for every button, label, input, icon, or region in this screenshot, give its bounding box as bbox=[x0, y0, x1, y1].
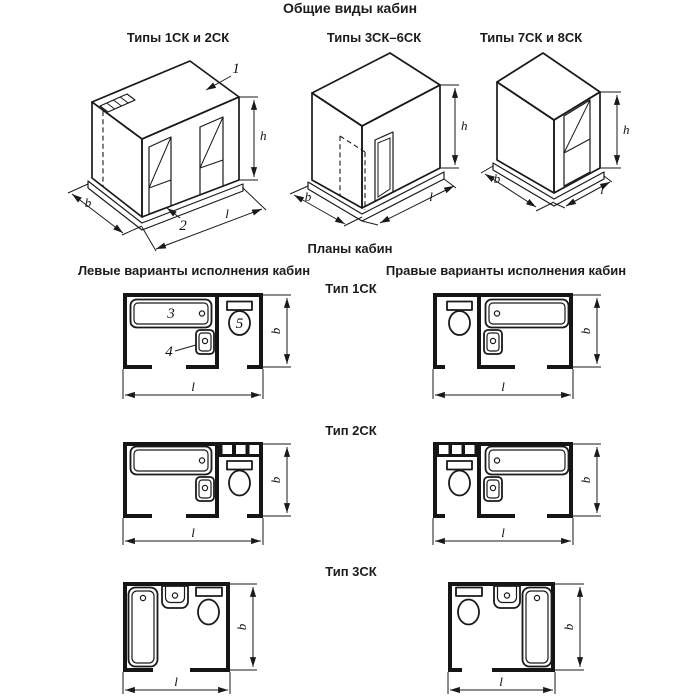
base-plinth bbox=[493, 163, 604, 206]
callout-label-1: 1 bbox=[232, 61, 240, 77]
dim-label-l: l bbox=[174, 674, 178, 689]
plan-3sk-right: b l bbox=[437, 577, 597, 700]
door-opening bbox=[149, 137, 171, 214]
dim-label-l: l bbox=[429, 189, 433, 204]
type-2sk-title: Тип 2СК bbox=[251, 423, 451, 438]
sheet-title: Общие виды кабин bbox=[0, 0, 700, 16]
dimension-l: l bbox=[448, 672, 555, 694]
dim-label-b: b bbox=[305, 189, 312, 204]
base-plinth bbox=[308, 172, 444, 221]
dimension-b: b bbox=[555, 584, 584, 670]
dimension-b: b bbox=[68, 184, 142, 235]
dimension-b: b bbox=[263, 295, 291, 367]
dim-label-b: b bbox=[268, 327, 283, 334]
dimension-l: l bbox=[362, 179, 456, 225]
cabin-box bbox=[88, 61, 243, 230]
dim-label-l: l bbox=[600, 182, 604, 197]
washbasin bbox=[494, 586, 520, 608]
bathtub bbox=[131, 447, 212, 475]
dimension-l: l bbox=[433, 369, 573, 399]
dim-label-b: b bbox=[85, 195, 92, 210]
dim-label-b: b bbox=[268, 476, 283, 483]
dim-label-b: b bbox=[578, 476, 593, 483]
callout-label-5: 5 bbox=[236, 316, 244, 332]
iso-view-3-title: Типы 7СК и 8СК bbox=[431, 30, 631, 45]
dim-label-l: l bbox=[225, 206, 229, 221]
right-variants-title: Правые варианты исполнения кабин bbox=[356, 263, 656, 278]
plan-3sk-left: b l bbox=[112, 577, 272, 700]
toilet bbox=[227, 461, 252, 496]
dimension-l: l bbox=[433, 518, 573, 545]
dim-label-h: h bbox=[461, 118, 468, 133]
dim-label-b: b bbox=[494, 171, 501, 186]
bathtub bbox=[129, 588, 158, 667]
dim-label-h: h bbox=[623, 122, 630, 137]
dimension-b: b bbox=[263, 444, 291, 516]
bathtub bbox=[523, 588, 552, 667]
dimension-h: h bbox=[239, 97, 267, 180]
dimension-l: l bbox=[142, 188, 266, 251]
iso-view-7sk-8sk-drawing: h b l bbox=[475, 48, 660, 223]
dimension-b: b bbox=[573, 295, 601, 367]
iso-view-1sk-2sk-drawing: h b l 1 2 bbox=[55, 48, 290, 253]
washbasin bbox=[484, 477, 502, 501]
toilet bbox=[196, 588, 222, 625]
callout-label-2: 2 bbox=[179, 218, 187, 234]
bathtub bbox=[486, 300, 569, 328]
leader-line bbox=[175, 345, 196, 351]
dim-label-l: l bbox=[191, 379, 195, 394]
cabin-box bbox=[308, 53, 444, 221]
dim-label-l: l bbox=[501, 525, 505, 540]
dimension-l: l bbox=[123, 518, 263, 545]
door-opening bbox=[375, 132, 393, 201]
door-opening bbox=[200, 117, 223, 195]
dimension-l: l bbox=[554, 176, 612, 208]
dimension-l: l bbox=[123, 369, 263, 399]
dimension-h: h bbox=[440, 85, 468, 168]
toilet bbox=[447, 302, 472, 336]
plan-2sk-left: b l bbox=[112, 437, 307, 549]
dim-label-b: b bbox=[578, 327, 593, 334]
dimension-h: h bbox=[600, 92, 630, 168]
cabin-box bbox=[493, 53, 604, 206]
plan-1sk-right: b l bbox=[422, 288, 617, 403]
dimension-b: b bbox=[230, 584, 257, 670]
washbasin: 4 bbox=[165, 330, 214, 360]
vent-block bbox=[215, 442, 263, 457]
plan-1sk-left: 3 4 5 b l bbox=[112, 288, 307, 403]
callout-label-3: 3 bbox=[166, 306, 175, 322]
plan-2sk-right: b l bbox=[422, 437, 617, 549]
dimension-b: b bbox=[573, 444, 601, 516]
type-3sk-title: Тип 3СК bbox=[251, 564, 451, 579]
base-plinth bbox=[88, 181, 243, 230]
washbasin bbox=[162, 586, 188, 608]
washbasin bbox=[196, 477, 214, 501]
vent-block bbox=[437, 442, 477, 457]
iso-view-1-title: Типы 1СК и 2СК bbox=[78, 30, 278, 45]
dim-label-l: l bbox=[191, 525, 195, 540]
washbasin bbox=[484, 330, 502, 354]
dim-label-l: l bbox=[499, 674, 503, 689]
iso-view-3sk-6sk-drawing: h b l bbox=[285, 48, 475, 238]
dim-label-l: l bbox=[501, 379, 505, 394]
dim-label-b: b bbox=[561, 623, 576, 630]
gost-cabin-drawing-sheet: { "titles": { "main": "Общие виды кабин"… bbox=[0, 0, 700, 700]
toilet: 5 bbox=[227, 302, 252, 336]
callout-label-4: 4 bbox=[165, 344, 173, 360]
left-variants-title: Левые варианты исполнения кабин bbox=[44, 263, 344, 278]
bathtub bbox=[486, 447, 569, 475]
dimension-l: l bbox=[123, 672, 230, 694]
door-opening bbox=[564, 100, 590, 186]
dim-label-h: h bbox=[260, 128, 267, 143]
toilet bbox=[456, 588, 482, 625]
toilet bbox=[447, 461, 472, 496]
bathtub: 3 bbox=[131, 300, 212, 328]
dim-label-b: b bbox=[234, 623, 249, 630]
